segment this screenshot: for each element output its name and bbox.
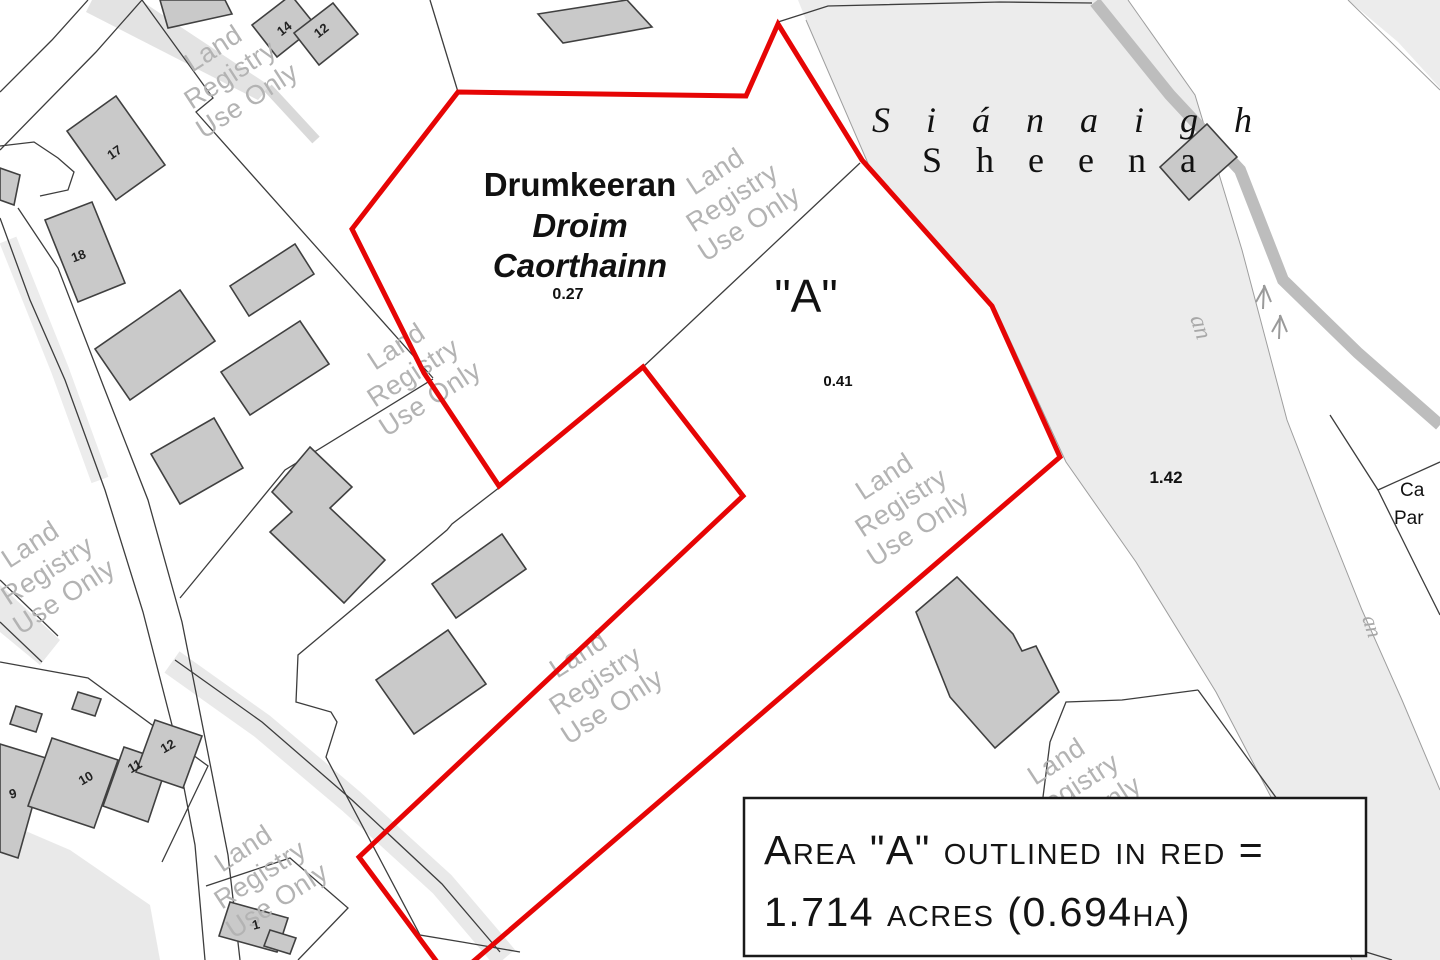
boundary	[0, 0, 88, 92]
land-registry-map: Land Registry Use Only Land Registry Use…	[0, 0, 1440, 960]
building	[0, 168, 20, 205]
river-name-italic: Siánaigh	[872, 100, 1288, 140]
watermark: Land Registry Use Only	[659, 128, 806, 268]
clipped-label-ca: Ca	[1400, 480, 1425, 501]
building	[538, 0, 652, 43]
map-canvas: Land Registry Use Only Land Registry Use…	[0, 0, 1440, 960]
building	[151, 418, 243, 504]
building	[432, 534, 526, 618]
porch	[72, 692, 101, 716]
watermark: Land Registry Use Only	[187, 805, 334, 945]
clipped-label-par: Par	[1394, 508, 1424, 529]
watermark: Land Registry Use Only	[0, 501, 120, 641]
building	[230, 244, 314, 316]
boundary	[1330, 415, 1440, 490]
townland-area: 0.27	[552, 286, 583, 303]
stream-flow-arrow-icon	[1256, 285, 1271, 309]
note-box-line1: Area "A" outlined in red =	[764, 827, 1264, 873]
note-box-line2: 1.714 acres (0.694ha)	[764, 889, 1191, 935]
parcel-a-area: 0.41	[823, 373, 852, 390]
townland-irish-2: Caorthainn	[493, 247, 667, 284]
bottom-left-gray	[0, 820, 160, 960]
building-l-shaped	[270, 447, 385, 603]
parcel-a-label: "A"	[774, 270, 837, 322]
building	[221, 321, 329, 415]
townland-name: Drumkeeran	[484, 166, 677, 203]
building	[376, 630, 486, 734]
area-note-box: Area "A" outlined in red = 1.714 acres (…	[744, 798, 1366, 956]
stream-flow-arrow-icon	[1272, 315, 1287, 339]
river-parcel-area: 1.42	[1149, 468, 1182, 487]
building-10	[28, 738, 118, 828]
watermark: Land Registry Use Only	[340, 303, 487, 443]
building	[95, 290, 215, 400]
building	[160, 0, 232, 28]
river-name-roman: Sheena	[922, 140, 1230, 180]
building-18	[45, 202, 125, 302]
porch	[10, 706, 42, 732]
townland-irish-1: Droim	[532, 207, 627, 244]
boundary	[430, 0, 458, 92]
building-t-shaped	[916, 577, 1059, 748]
